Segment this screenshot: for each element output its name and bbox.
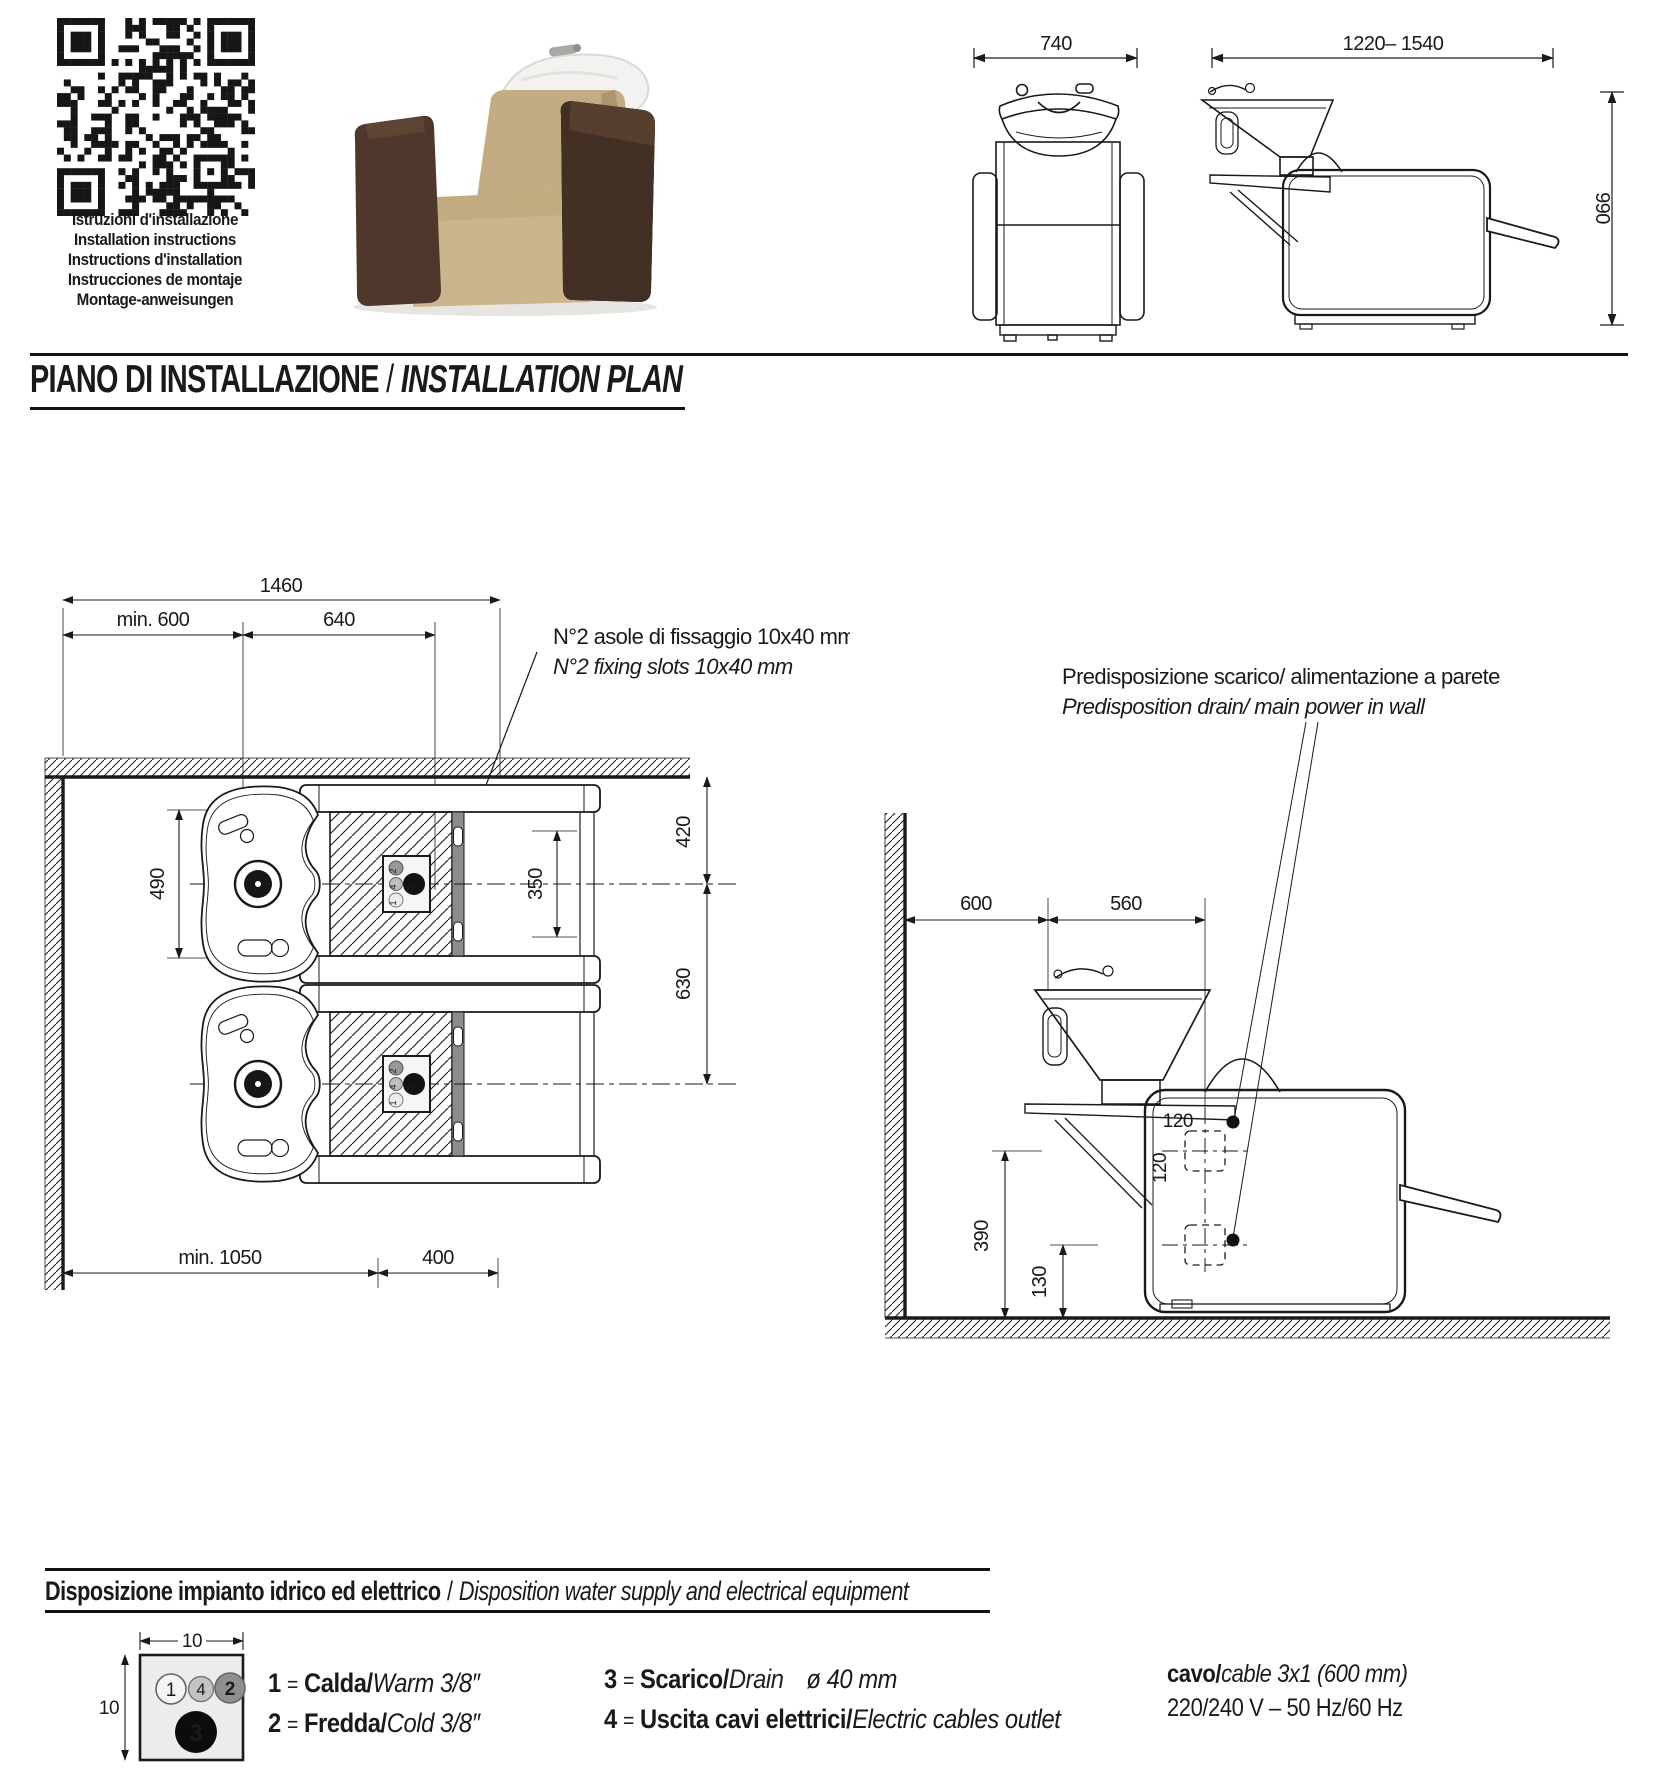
legend-item-3: 3=Scarico/Drainø 40 mm [604,1664,1060,1704]
svg-text:130: 130 [1029,1266,1051,1298]
qr-caption-line: Instructions d'installation [45,250,266,270]
front-base [1000,325,1116,341]
side-view-drawing: 1220– 1540 990 [1180,22,1645,352]
diagram-dim-width: 10 [140,1631,243,1652]
photo-armrest-left [355,116,441,306]
legend-item-number: 4 [604,1704,617,1734]
side-footrest [1487,218,1559,248]
svg-text:4: 4 [196,1680,205,1699]
legend-item-it: Uscita cavi elettrici/ [640,1704,852,1734]
page-title-separator: / [386,358,393,401]
section2-title-separator: / [447,1576,453,1606]
legend-equals: = [287,1712,298,1737]
plan-dim-1460: 1460 [63,575,500,778]
page-title: PIANO DI INSTALLAZIONE/INSTALLATION PLAN [30,358,682,402]
svg-text:990: 990 [1591,192,1613,224]
qr-caption-line: Montage-anweisungen [45,290,266,310]
svg-text:600: 600 [960,893,992,915]
installation-sheet: Istruzioni d'installazione Installation … [0,0,1658,1778]
svg-text:640: 640 [323,609,355,631]
svg-text:120: 120 [1150,1153,1171,1183]
front-armrests [973,173,1144,320]
svg-text:2: 2 [225,1679,236,1700]
legend-item-4: 4=Uscita cavi elettrici/Electric cables … [604,1704,1060,1744]
svg-text:N°2 fixing slots 10x40 mm: N°2 fixing slots 10x40 mm [553,654,793,679]
backwash-unit-top [190,785,740,983]
legend-item-1: 1=Calda/Warm 3/8″ [268,1668,480,1708]
title-rule-top [30,353,1628,356]
legend-item-diameter: ø 40 mm [806,1664,897,1694]
svg-text:1460: 1460 [260,575,303,597]
diagram-connection-4: 4 [189,1677,214,1702]
legend-item-2: 2=Fredda/Cold 3/8″ [268,1708,480,1748]
legend-item-number: 2 [268,1708,281,1738]
cable-spec: cavo/cable 3x1 (600 mm) [1167,1660,1408,1694]
side-dim-120v: 120 [1150,1153,1171,1183]
side-wall-floor [885,813,1610,1338]
wall-outlets [1162,1108,1248,1272]
section2-title: Disposizione impianto idrico ed elettric… [45,1576,908,1607]
qr-caption: Istruzioni d'installazione Installation … [45,210,266,310]
power-spec: 220/240 V – 50 Hz/60 Hz [1167,1694,1408,1728]
svg-text:490: 490 [147,868,169,900]
svg-text:630: 630 [673,968,695,1000]
plan-dim-630: 630 [673,884,707,1084]
svg-text:560: 560 [1110,893,1142,915]
drain-power-callout: Predisposizione scarico/ alimentazione a… [1062,664,1500,1238]
diagram-connection-2: 2 [215,1673,245,1703]
svg-text:10: 10 [182,1631,202,1652]
power-rating: 220/240 V – 50 Hz/60 Hz [1167,1694,1403,1722]
svg-text:10: 10 [99,1698,119,1719]
svg-text:Predisposizione scarico/ alime: Predisposizione scarico/ alimentazione a… [1062,664,1500,689]
legend-item-it: Calda/ [304,1668,373,1698]
legend-item-it: Scarico/ [640,1664,729,1694]
page-title-en: INSTALLATION PLAN [401,358,682,401]
section2-title-it: Disposizione impianto idrico ed elettric… [45,1576,441,1606]
qr-caption-line: Instrucciones de montaje [45,270,266,290]
legend-item-en: Warm 3/8″ [373,1668,480,1698]
outlet-marker-dot [1227,1116,1240,1129]
legend-item-it: Fredda/ [304,1708,387,1738]
svg-text:1220– 1540: 1220– 1540 [1343,33,1444,55]
side-dim-130: 130 [1029,1245,1098,1318]
side-chair-body [1283,170,1559,329]
legend-item-number: 1 [268,1668,281,1698]
legend-item-en: Electric cables outlet [852,1704,1060,1734]
product-photo [325,18,665,318]
dim-740: 740 [974,33,1137,68]
side-bracket [1210,153,1342,245]
legend-item-en: Cold 3/8″ [387,1708,480,1738]
page-title-it: PIANO DI INSTALLAZIONE [30,358,379,401]
svg-text:120: 120 [1163,1111,1193,1132]
legend-equals: = [623,1708,634,1733]
cable-label-it: cavo/ [1167,1660,1221,1688]
photo-armrest-right [561,101,655,302]
section2-rule-bottom [45,1610,990,1613]
title-rule-bottom [30,407,685,410]
backwash-unit-bottom [190,985,740,1183]
svg-text:390: 390 [971,1220,993,1252]
dim-990: 990 [1591,92,1624,325]
plan-view-drawing: 2 4 1 3 N°2 asole di fissaggio 10x40 mm … [40,560,850,1330]
front-cabinet [996,142,1120,325]
front-basin [999,84,1118,156]
svg-text:740: 740 [1040,33,1072,55]
side-footrest [1400,1185,1501,1222]
dim-1220-1540: 1220– 1540 [1212,33,1553,68]
diagram-connection-3: 3 [175,1711,217,1753]
legend-column-2: 3=Scarico/Drainø 40 mm 4=Uscita cavi ele… [604,1664,1060,1744]
section2-title-en: Disposition water supply and electrical … [459,1576,909,1606]
plan-dim-420: 420 [673,777,707,884]
legend-column-3: cavo/cable 3x1 (600 mm) 220/240 V – 50 H… [1167,1660,1408,1728]
legend-item-en: Drain [729,1664,784,1694]
svg-text:N°2 asole di fissaggio 10x40 m: N°2 asole di fissaggio 10x40 mm [553,624,850,649]
connections-diagram: 10 10 1 4 2 3 [85,1622,260,1778]
cable-label-en: cable 3x1 (600 mm) [1221,1660,1408,1688]
side-dim-120h: 120 [1163,1111,1193,1132]
qr-caption-line: Istruzioni d'installazione [45,210,266,230]
qr-caption-line: Installation instructions [45,230,266,250]
side-basin [1202,84,1333,176]
diagram-connection-1: 1 [156,1674,186,1704]
svg-text:Predisposition drain/ main pow: Predisposition drain/ main power in wall [1062,694,1426,719]
front-view-drawing: 740 [930,22,1170,352]
legend-equals: = [623,1668,634,1693]
svg-text:1: 1 [166,1680,177,1701]
svg-text:350: 350 [525,868,547,900]
svg-text:min. 1050: min. 1050 [178,1247,262,1269]
legend-item-number: 3 [604,1664,617,1694]
side-chair-body [1145,1090,1501,1312]
diagram-dim-height: 10 [99,1655,125,1760]
plan-dim-min1050-400: min. 1050 400 [63,1247,498,1288]
svg-text:400: 400 [422,1247,454,1269]
svg-text:420: 420 [673,816,695,848]
qr-code [57,18,255,216]
legend-column-1: 1=Calda/Warm 3/8″ 2=Fredda/Cold 3/8″ [268,1668,480,1748]
svg-text:3: 3 [189,1720,202,1747]
legend-equals: = [287,1672,298,1697]
svg-text:min. 600: min. 600 [117,609,190,631]
side-install-drawing: Predisposizione scarico/ alimentazione a… [860,560,1650,1350]
section2-rule-top [45,1568,990,1571]
outlet-marker-dot [1227,1234,1240,1247]
side-dim-600-560: 600 560 [905,893,1205,1108]
